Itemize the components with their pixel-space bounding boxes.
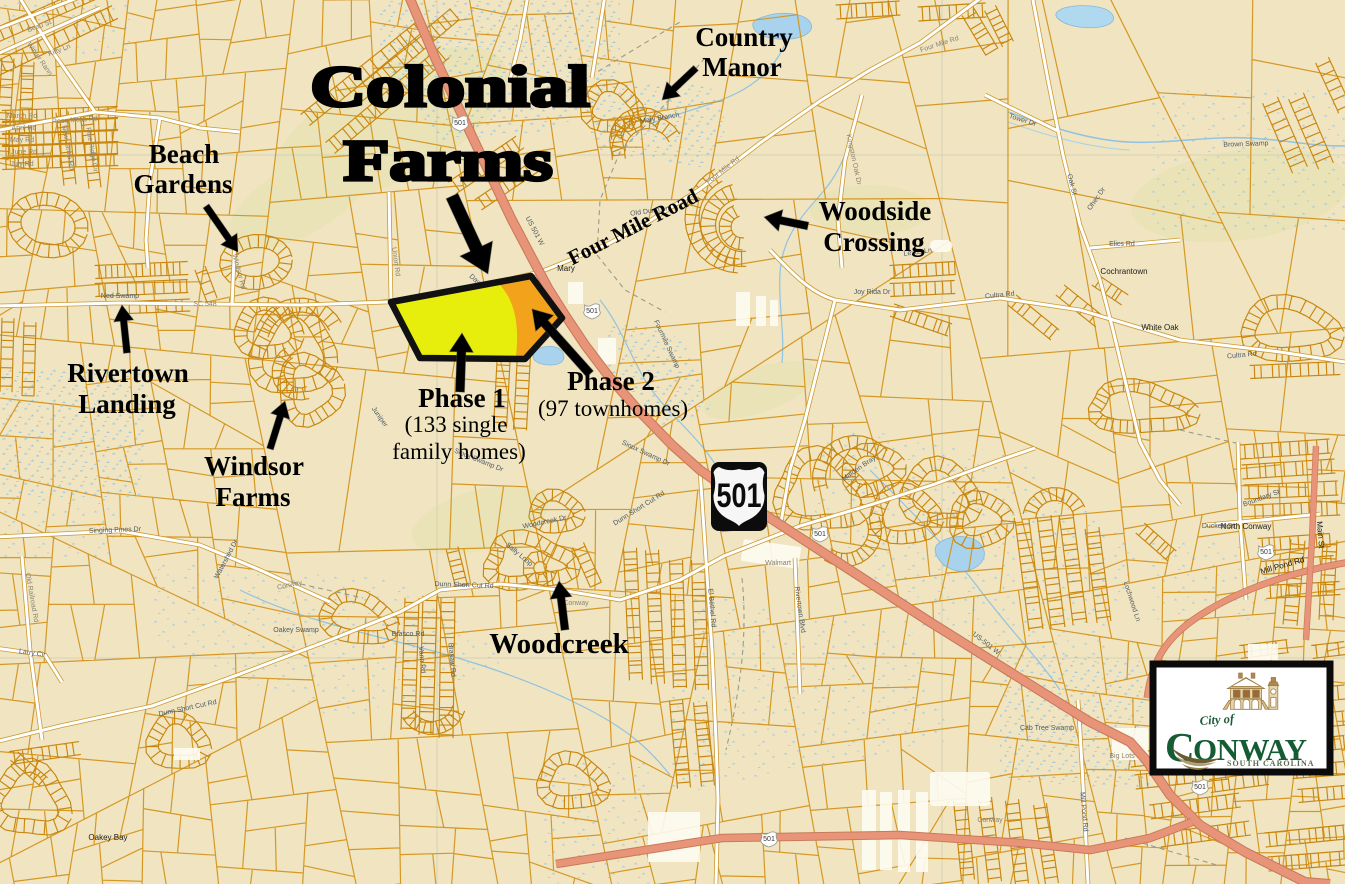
svg-text:Gardens: Gardens (133, 169, 232, 199)
svg-text:Duckett St: Duckett St (1202, 523, 1234, 530)
svg-text:SC 548: SC 548 (193, 301, 216, 308)
svg-text:March Rd: March Rd (7, 113, 37, 120)
svg-text:Conway: Conway (563, 600, 589, 607)
svg-text:Rivertown: Rivertown (67, 358, 188, 388)
svg-text:Joy Rida Dr: Joy Rida Dr (854, 289, 891, 296)
svg-text:501: 501 (763, 836, 775, 843)
svg-text:Farms: Farms (216, 482, 291, 512)
svg-text:Oakey Bay: Oakey Bay (88, 833, 127, 842)
svg-text:Crossing: Crossing (823, 227, 925, 257)
svg-text:Elics Rd: Elics Rd (1109, 241, 1135, 248)
svg-text:Landing: Landing (78, 389, 176, 419)
svg-text:Beach: Beach (149, 139, 220, 169)
svg-text:Woodcreek: Woodcreek (489, 628, 629, 660)
svg-text:(97 townhomes): (97 townhomes) (538, 396, 688, 421)
svg-text:Country: Country (695, 22, 793, 52)
svg-text:Conway: Conway (977, 817, 1003, 824)
svg-text:family homes): family homes) (392, 439, 526, 464)
svg-text:City of: City of (1199, 712, 1236, 728)
svg-text:June Rd: June Rd (11, 149, 37, 156)
svg-text:501: 501 (1194, 784, 1206, 791)
svg-text:501: 501 (717, 477, 762, 515)
svg-text:Walmart: Walmart (765, 560, 791, 567)
svg-text:April Rd: April Rd (12, 125, 37, 132)
svg-text:Cochrantown: Cochrantown (1100, 267, 1147, 276)
svg-text:White Oak: White Oak (1141, 323, 1179, 332)
svg-text:May Rd: May Rd (10, 137, 34, 144)
svg-text:501: 501 (586, 308, 598, 315)
svg-text:July Rd: July Rd (10, 161, 33, 168)
svg-text:Phase 2: Phase 2 (567, 366, 655, 396)
svg-text:SOUTH CAROLINA: SOUTH CAROLINA (1227, 759, 1315, 768)
svg-text:501: 501 (454, 120, 466, 127)
svg-text:Big Lots: Big Lots (1109, 753, 1135, 760)
svg-text:501: 501 (814, 531, 826, 538)
svg-text:Colonial: Colonial (310, 54, 590, 118)
svg-text:Phase 1: Phase 1 (418, 383, 506, 413)
svg-text:Brasco Rd: Brasco Rd (392, 631, 425, 638)
svg-text:Oakey Swamp: Oakey Swamp (273, 627, 319, 634)
svg-text:Farms: Farms (343, 128, 552, 193)
svg-text:Windsor: Windsor (204, 451, 304, 481)
svg-text:Ned Swamp: Ned Swamp (101, 293, 139, 300)
svg-text:Woodside: Woodside (819, 196, 932, 226)
svg-text:501: 501 (1260, 549, 1272, 556)
svg-text:(133 single: (133 single (405, 412, 508, 437)
svg-text:Manor: Manor (702, 52, 782, 82)
svg-text:Cab Tree Swamp: Cab Tree Swamp (1020, 725, 1074, 732)
